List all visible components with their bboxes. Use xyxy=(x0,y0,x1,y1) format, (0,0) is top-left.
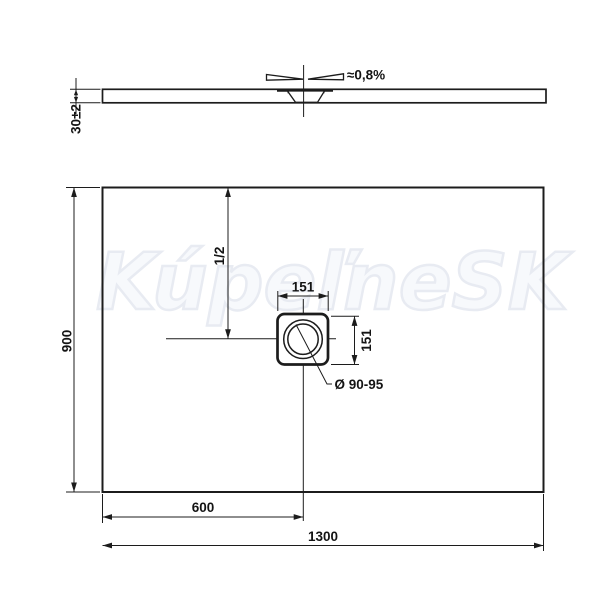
dim-900: 900 xyxy=(60,188,101,493)
dim-600-label: 600 xyxy=(192,500,215,515)
dim-half: 1/2 xyxy=(212,188,228,339)
side-view: ≈0,8% 30±2 xyxy=(69,65,547,134)
slope-label: ≈0,8% xyxy=(347,68,385,83)
drain-cover-square xyxy=(278,314,329,365)
plan-view: 900 1/2 151 xyxy=(60,188,544,552)
dim-151-width-label: 151 xyxy=(292,280,315,295)
dim-151-depth: 151 xyxy=(331,316,374,364)
side-view-drain-body xyxy=(288,91,325,102)
dim-half-label: 1/2 xyxy=(212,247,227,266)
dim-thickness: 30±2 xyxy=(69,78,101,134)
dim-thickness-arrow-up xyxy=(74,90,78,96)
dim-151-depth-label: 151 xyxy=(359,329,374,352)
drain-diameter-label: Ø 90-95 xyxy=(335,377,384,392)
dim-1300: 1300 xyxy=(103,494,544,551)
drain xyxy=(278,314,329,365)
dim-900-label: 900 xyxy=(60,330,75,353)
dim-1300-label: 1300 xyxy=(308,529,338,544)
slope-triangle-right xyxy=(308,74,344,80)
dim-thickness-arrow-down xyxy=(74,97,78,103)
shower-tray-drawing: ≈0,8% 30±2 900 xyxy=(0,0,600,600)
dim-600: 600 xyxy=(103,494,304,523)
technical-drawing-page: KúpeľneSK ≈0,8% xyxy=(0,0,600,600)
dim-thickness-label: 30±2 xyxy=(69,104,84,134)
slope-triangle-left xyxy=(267,75,304,81)
